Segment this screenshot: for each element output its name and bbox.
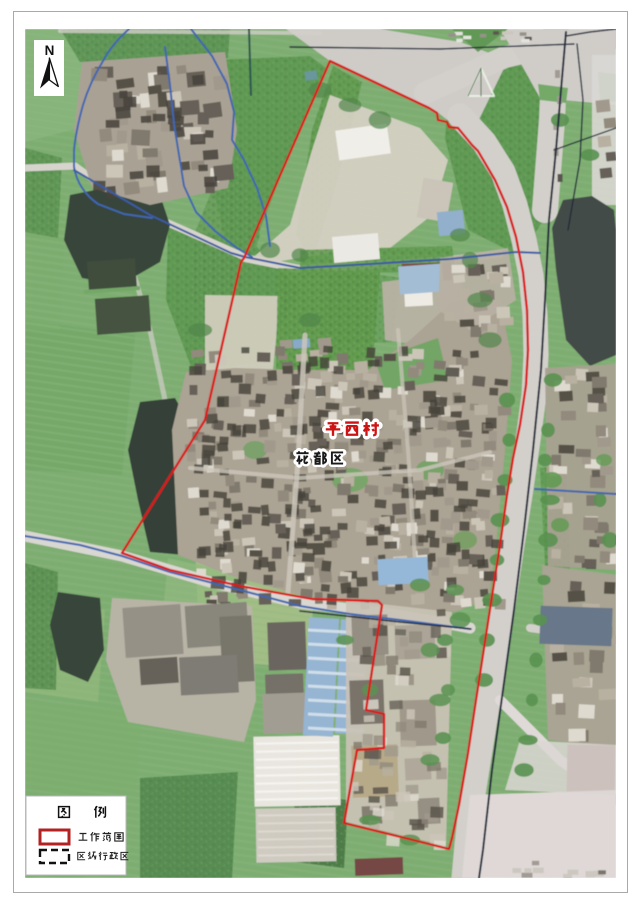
svg-text:N: N (45, 43, 55, 58)
